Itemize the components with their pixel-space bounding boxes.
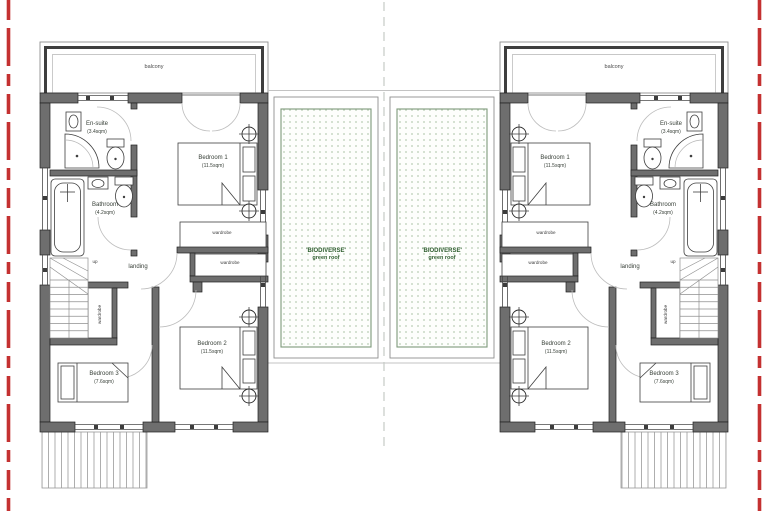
wardrobe-label-left-1: wardrobe bbox=[192, 230, 252, 235]
wardrobe-label-right-1: wardrobe bbox=[516, 230, 576, 235]
floor-plan-page: balcony En-suite(3.4sqm) Bedroom 1(11.5s… bbox=[0, 0, 768, 511]
landing-label-left: landing bbox=[108, 264, 168, 272]
landing-label-right: landing bbox=[600, 264, 660, 272]
green-roof-label-right: 'BIODIVERSE'green roof bbox=[402, 248, 482, 262]
floor-plan-linework bbox=[0, 0, 768, 511]
wardrobe-label-left-2: wardrobe bbox=[200, 260, 260, 265]
green-roof-label-left: 'BIODIVERSE'green roof bbox=[286, 248, 366, 262]
room-label-bedroom3-right: Bedroom 3(7.6sqm) bbox=[634, 371, 694, 386]
up-label-right: up bbox=[663, 259, 683, 264]
room-label-bedroom2-right: Bedroom 2(11.5sqm) bbox=[526, 341, 586, 356]
room-label-bedroom1-left: Bedroom 1(11.5sqm) bbox=[183, 155, 243, 170]
room-label-bedroom2-left: Bedroom 2(11.5sqm) bbox=[182, 341, 242, 356]
room-label-bedroom3-left: Bedroom 3(7.6sqm) bbox=[74, 371, 134, 386]
wardrobe-label-right-3: wardrobe bbox=[661, 289, 671, 339]
room-label-bathroom-right: Bathroom(4.2sqm) bbox=[633, 202, 693, 217]
wardrobe-label-left-3: wardrobe bbox=[95, 289, 105, 339]
balcony-label-right: balcony bbox=[564, 64, 664, 72]
room-label-ensuite-left: En-suite(3.4sqm) bbox=[67, 121, 127, 136]
room-label-ensuite-right: En-suite(3.4sqm) bbox=[641, 121, 701, 136]
room-label-bathroom-left: Bathroom(4.2sqm) bbox=[75, 202, 135, 217]
balcony-label-left: balcony bbox=[104, 64, 204, 72]
room-label-bedroom1-right: Bedroom 1(11.5sqm) bbox=[525, 155, 585, 170]
up-label-left: up bbox=[85, 259, 105, 264]
wardrobe-label-right-2: wardrobe bbox=[508, 260, 568, 265]
